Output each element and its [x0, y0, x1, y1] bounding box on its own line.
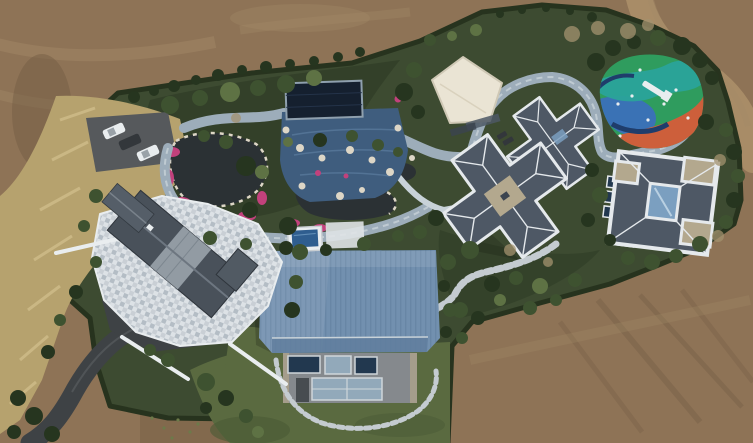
- aerial-photo: [0, 0, 753, 443]
- barn-wall: [283, 353, 417, 403]
- pool-pavilion: [285, 81, 362, 120]
